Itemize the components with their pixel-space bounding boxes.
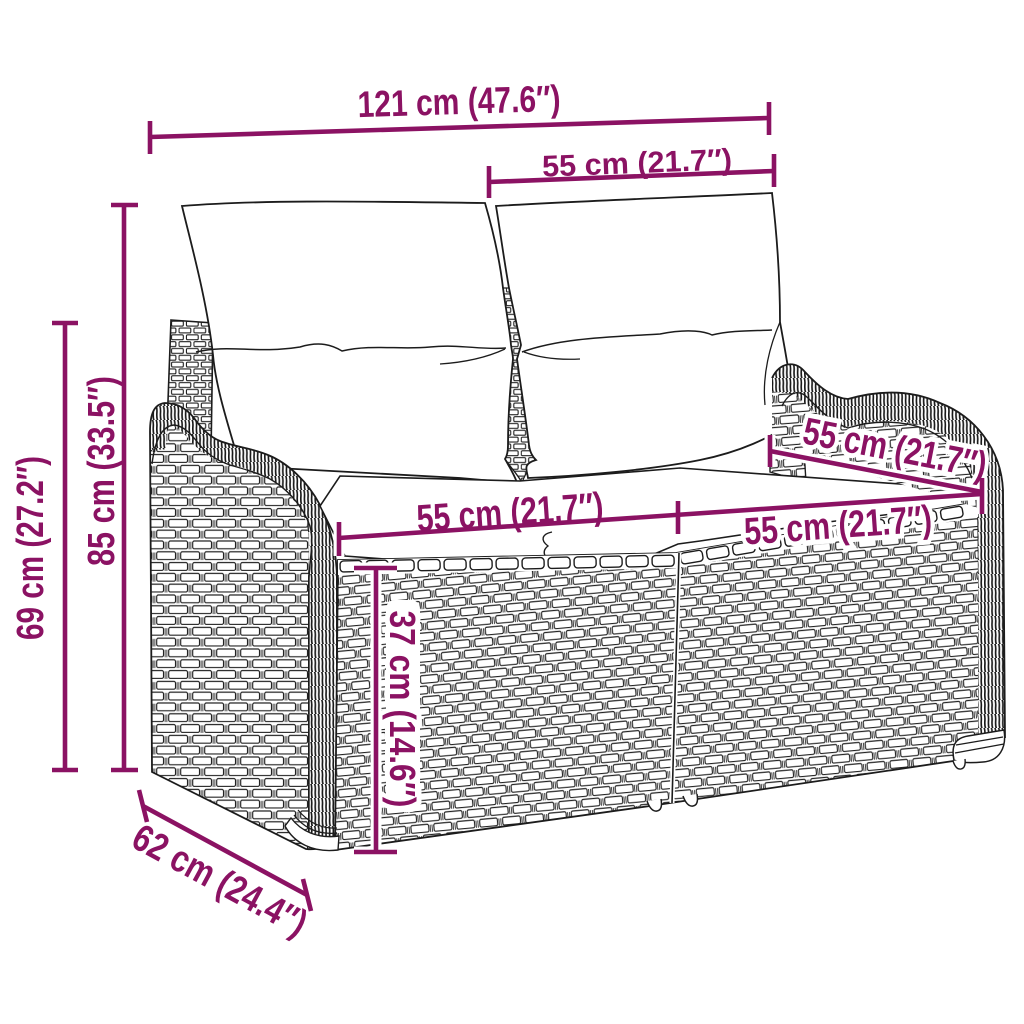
svg-text:37 cm (14.6″): 37 cm (14.6″): [382, 611, 423, 808]
svg-text:69 cm (27.2″): 69 cm (27.2″): [10, 456, 52, 640]
svg-text:121 cm (47.6″): 121 cm (47.6″): [357, 78, 561, 125]
svg-text:85 cm (33.5″): 85 cm (33.5″): [81, 376, 123, 566]
